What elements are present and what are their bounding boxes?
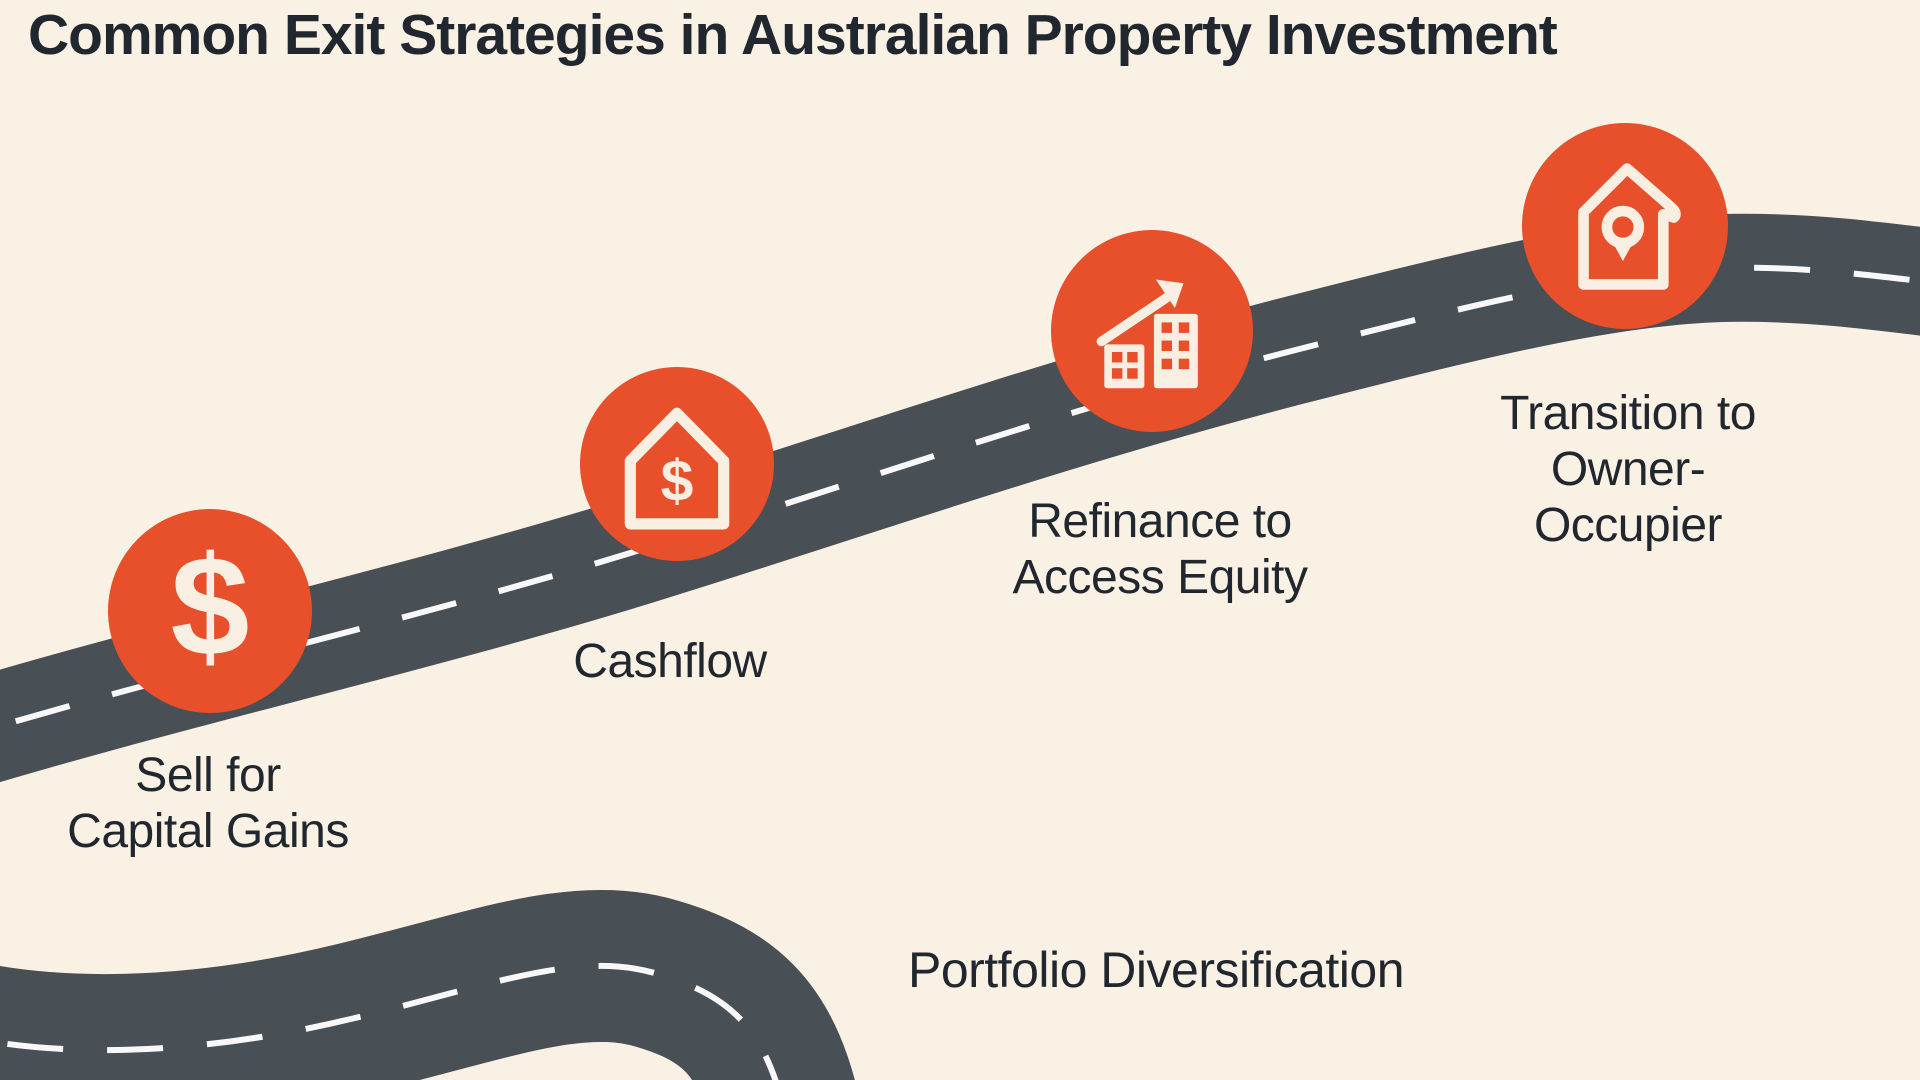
milestone-circle-refinance [1051, 230, 1253, 432]
milestone-circle-owner-occupier [1522, 123, 1728, 329]
infographic-canvas: Common Exit Strategies in Australian Pro… [0, 0, 1920, 1080]
page-title: Common Exit Strategies in Australian Pro… [28, 2, 1557, 68]
dollar-sign-icon: $ [171, 536, 250, 678]
house-location-pin-icon [1564, 159, 1686, 293]
milestone-label-owner-occupier: Transition to Owner-Occupier [1482, 386, 1774, 554]
buildings-growth-arrow-icon [1089, 268, 1215, 394]
milestone-label-sell-for-capital-gains: Sell for Capital Gains [67, 748, 349, 860]
house-dollar-icon: $ [614, 396, 740, 532]
milestone-label-cashflow: Cashflow [573, 634, 766, 690]
milestone-circle-cashflow: $ [580, 367, 774, 561]
house-dollar-symbol: $ [661, 449, 694, 514]
milestone-label-refinance: Refinance to Access Equity [1013, 494, 1308, 606]
bottom-road [0, 966, 792, 1080]
road-label-portfolio-diversification: Portfolio Diversification [908, 942, 1404, 998]
milestone-circle-sell-for-capital-gains: $ [108, 509, 312, 713]
